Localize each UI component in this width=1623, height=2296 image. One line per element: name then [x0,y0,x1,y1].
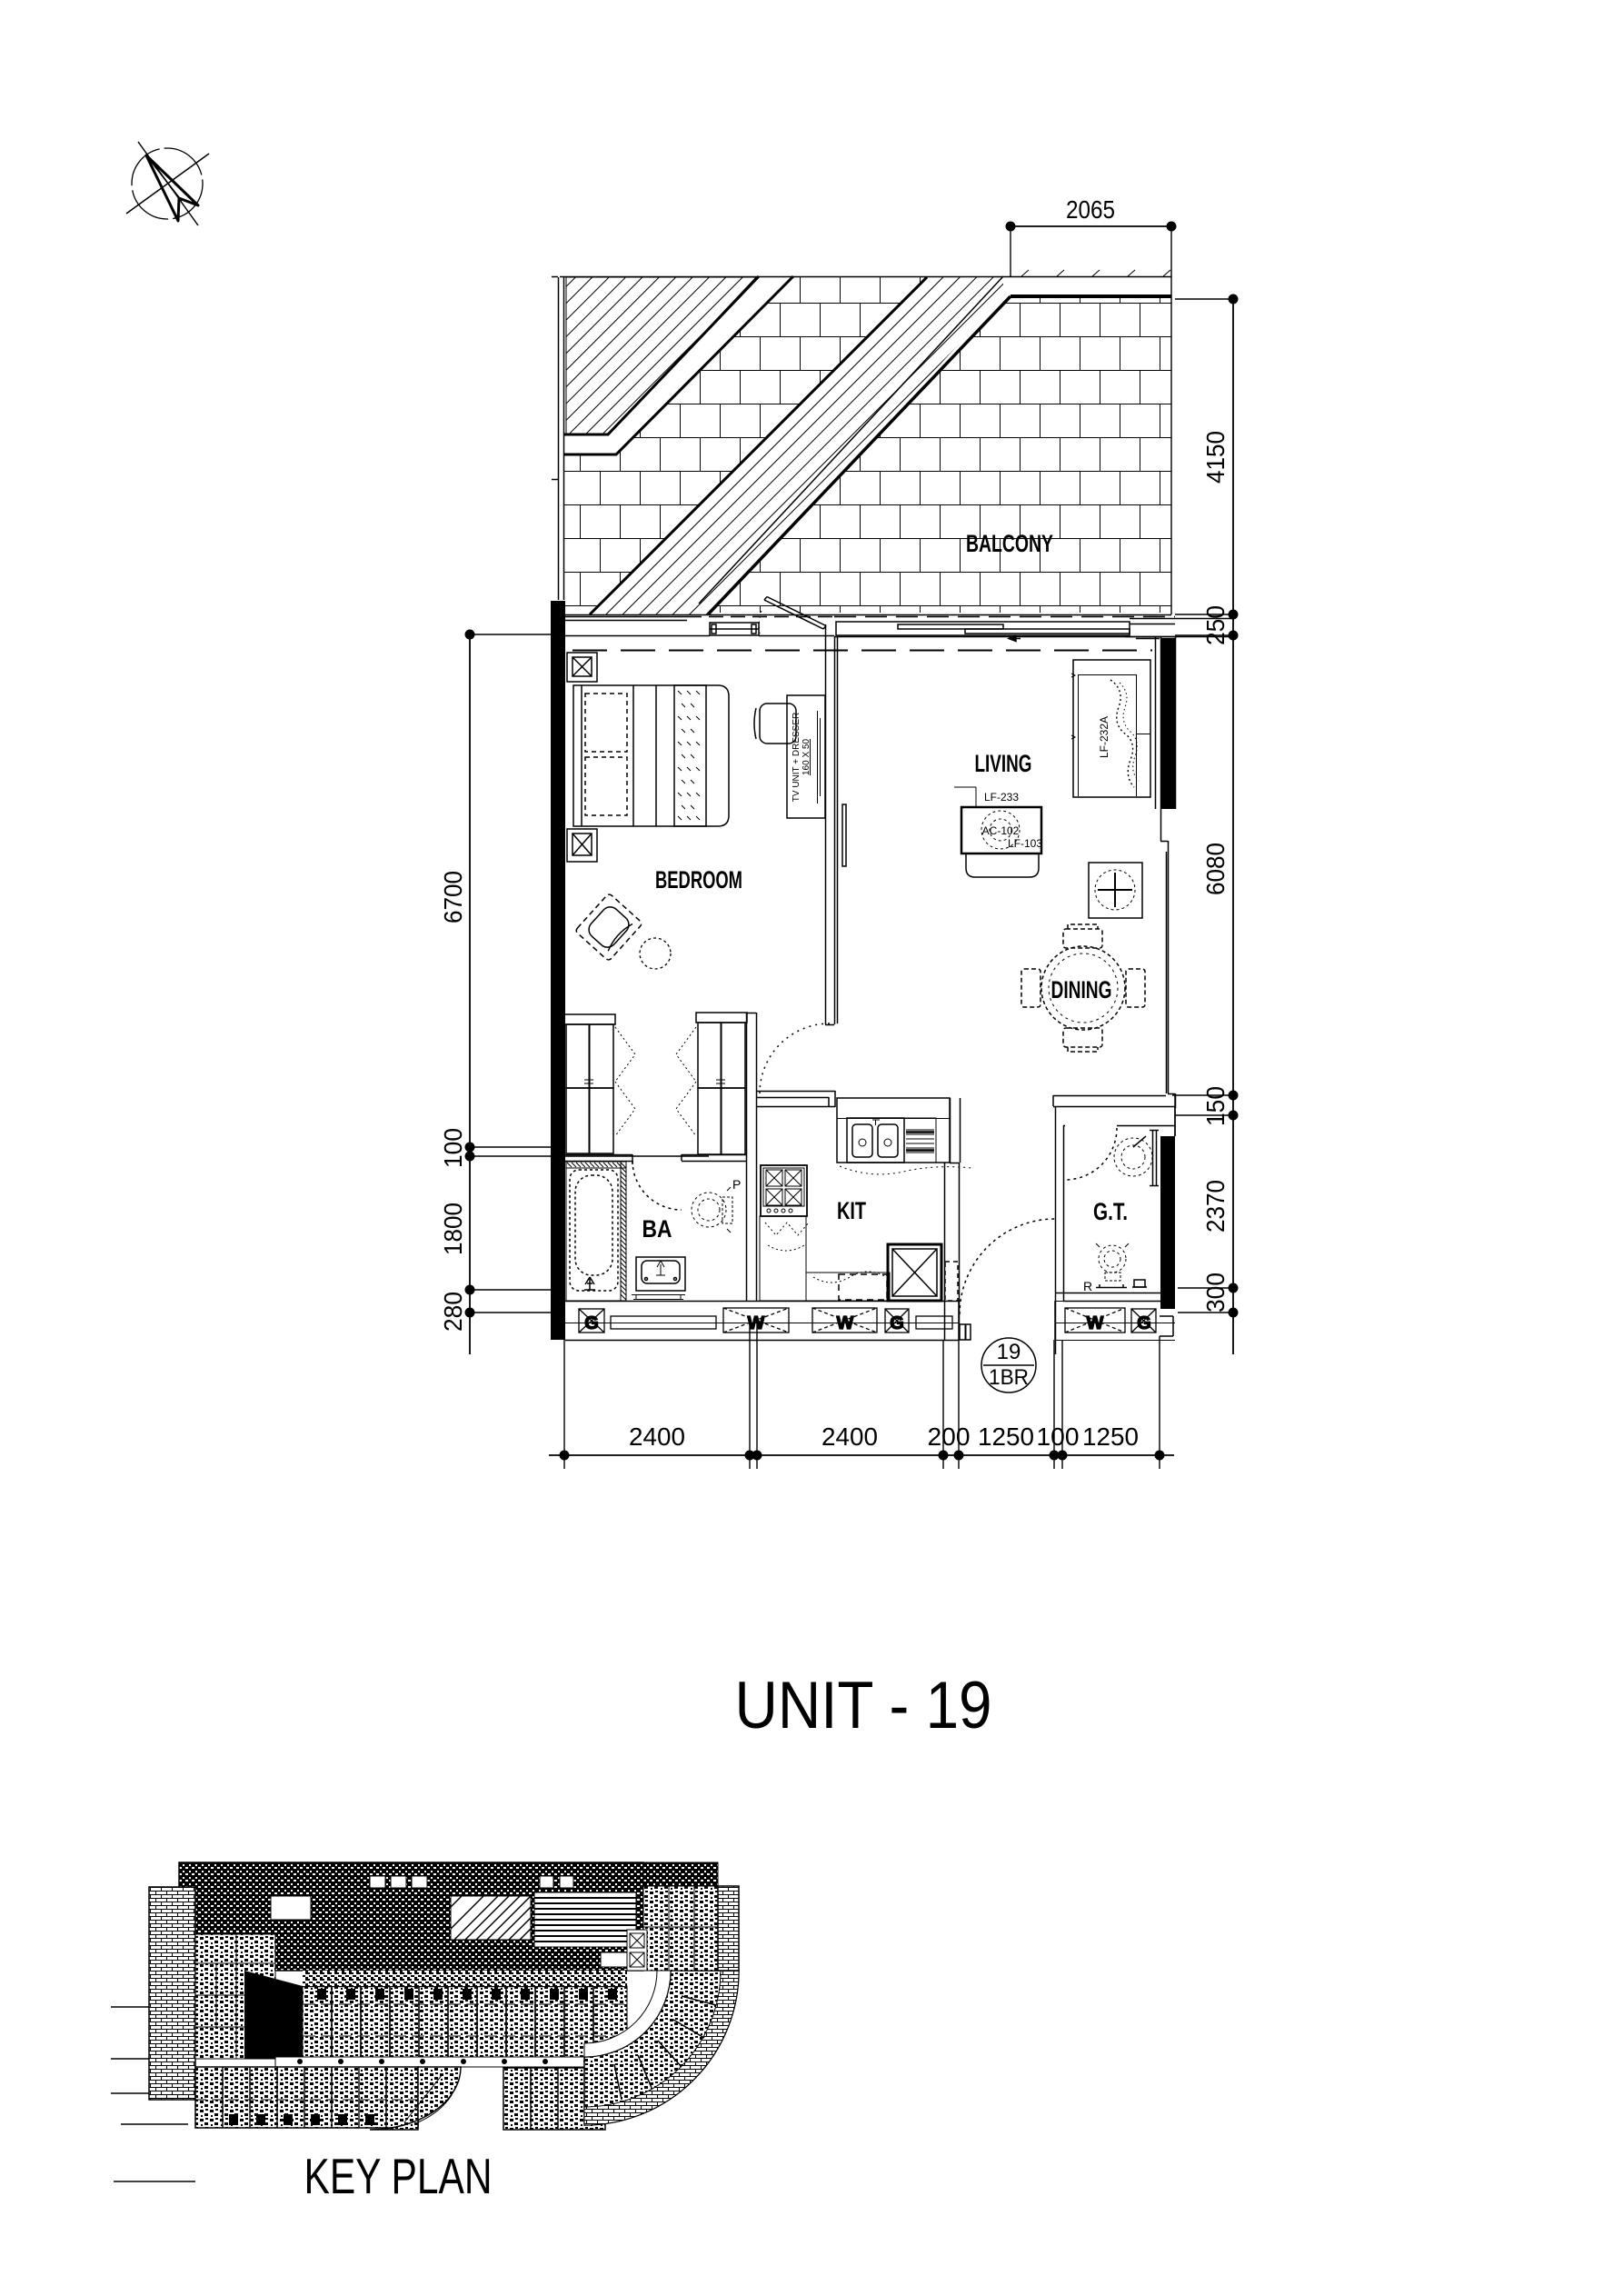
svg-text:1800: 1800 [439,1203,467,1255]
svg-text:G: G [584,1313,599,1333]
svg-text:BEDROOM: BEDROOM [655,866,742,893]
svg-text:160 X 50: 160 X 50 [802,739,811,775]
svg-text:KEY PLAN: KEY PLAN [304,2148,493,2204]
svg-text:BALCONY: BALCONY [966,530,1053,557]
svg-text:W: W [748,1313,765,1333]
svg-text:UNIT - 19: UNIT - 19 [735,1669,992,1742]
svg-text:LF-233: LF-233 [984,791,1019,804]
svg-text:4150: 4150 [1201,431,1230,484]
svg-text:1250: 1250 [1082,1423,1139,1451]
svg-text:2400: 2400 [629,1423,685,1451]
svg-text:300: 300 [1201,1273,1230,1313]
svg-text:2370: 2370 [1201,1180,1230,1233]
svg-text:100: 100 [439,1128,467,1168]
svg-text:G: G [890,1313,904,1333]
svg-text:19: 19 [997,1340,1021,1364]
svg-text:1250: 1250 [978,1423,1034,1451]
svg-text:LF-103: LF-103 [1008,837,1042,850]
svg-text:150: 150 [1201,1086,1230,1126]
svg-text:P: P [732,1177,741,1192]
svg-text:W: W [1087,1313,1104,1333]
svg-text:250: 250 [1201,605,1230,645]
svg-text:R: R [1083,1279,1092,1293]
svg-text:BA: BA [642,1215,672,1243]
svg-text:LF-232A: LF-232A [1098,716,1110,758]
svg-text:2065: 2065 [1066,195,1115,224]
svg-text:280: 280 [439,1292,467,1332]
svg-text:6080: 6080 [1201,843,1230,895]
svg-text:KIT: KIT [837,1197,866,1224]
svg-text:1BR: 1BR [989,1365,1029,1390]
svg-text:6700: 6700 [439,871,467,923]
svg-text:100: 100 [1037,1423,1080,1451]
svg-text:DINING: DINING [1051,976,1112,1003]
svg-text:W: W [837,1313,854,1333]
svg-text:LIVING: LIVING [975,750,1032,777]
svg-text:G: G [1137,1313,1151,1333]
svg-text:2400: 2400 [821,1423,878,1451]
svg-text:G.T.: G.T. [1093,1198,1128,1225]
svg-text:AC-102: AC-102 [982,824,1020,837]
svg-text:200: 200 [928,1423,971,1451]
